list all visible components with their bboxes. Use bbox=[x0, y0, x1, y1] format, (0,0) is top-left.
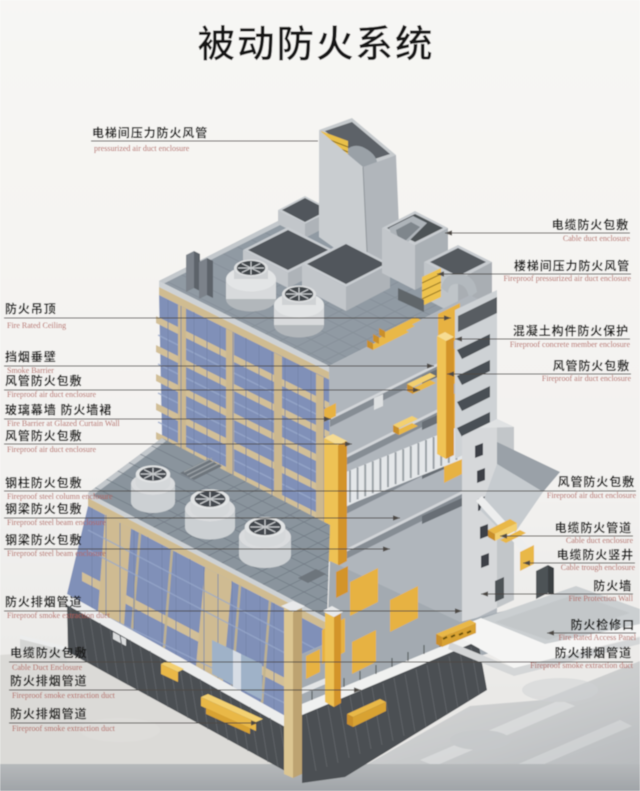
svg-text:钢梁防火包敷: 钢梁防火包敷 bbox=[5, 500, 82, 517]
svg-text:挡烟垂壁: 挡烟垂壁 bbox=[5, 348, 57, 365]
svg-text:防火排烟管道: 防火排烟管道 bbox=[10, 705, 87, 722]
svg-text:玻璃幕墙 防火墙裙: 玻璃幕墙 防火墙裙 bbox=[5, 401, 112, 418]
svg-text:防火排烟管道: 防火排烟管道 bbox=[10, 672, 87, 689]
svg-text:Fireproof air duct enclosure: Fireproof air duct enclosure bbox=[7, 445, 97, 454]
svg-text:混凝土构件防火保护: 混凝土构件防火保护 bbox=[513, 322, 629, 339]
svg-text:风管防火包敷: 风管防火包敷 bbox=[5, 427, 82, 444]
svg-text:防火吊顶: 防火吊顶 bbox=[5, 300, 57, 317]
svg-text:电梯间压力防火风管: 电梯间压力防火风管 bbox=[92, 124, 208, 141]
svg-text:Fire Rated Ceiling: Fire Rated Ceiling bbox=[7, 321, 66, 330]
svg-text:防火检修口: 防火检修口 bbox=[570, 616, 635, 633]
svg-text:Cable duct enclosure: Cable duct enclosure bbox=[563, 234, 631, 243]
svg-text:防火排烟管道: 防火排烟管道 bbox=[555, 644, 632, 661]
svg-text:Fireproof concrete member encl: Fireproof concrete member enclosure bbox=[510, 340, 631, 349]
svg-text:Fireproof air duct enclosure: Fireproof air duct enclosure bbox=[7, 390, 97, 399]
svg-text:Fireproof smoke extraction duc: Fireproof smoke extraction duct bbox=[530, 661, 634, 670]
svg-text:Cable duct enclosure: Cable duct enclosure bbox=[566, 536, 634, 545]
svg-text:Fireproof pressurized air duct: Fireproof pressurized air duct enclosure bbox=[503, 274, 631, 283]
svg-text:Fireproof smoke extraction duc: Fireproof smoke extraction duct bbox=[7, 611, 111, 620]
svg-text:电缆防火竖井: 电缆防火竖井 bbox=[557, 546, 634, 563]
svg-text:Fireproof steel beam enclosure: Fireproof steel beam enclosure bbox=[7, 549, 106, 558]
svg-text:Fireproof air duct enclosure: Fireproof air duct enclosure bbox=[542, 374, 632, 383]
svg-text:风管防火包敷: 风管防火包敷 bbox=[558, 473, 635, 490]
svg-text:钢柱防火包敷: 钢柱防火包敷 bbox=[5, 474, 82, 491]
svg-text:防火墙: 防火墙 bbox=[593, 577, 632, 594]
svg-text:pressurized air duct enclosure: pressurized air duct enclosure bbox=[94, 144, 190, 153]
svg-text:电缆防火包敷: 电缆防火包敷 bbox=[10, 644, 87, 661]
svg-text:防火排烟管道: 防火排烟管道 bbox=[5, 593, 82, 610]
svg-text:Cable Duct Enclosure: Cable Duct Enclosure bbox=[12, 663, 83, 672]
svg-text:Fireproof steel beam enclosure: Fireproof steel beam enclosure bbox=[7, 518, 106, 527]
svg-text:钢梁防火包敷: 钢梁防火包敷 bbox=[5, 531, 82, 548]
svg-text:Fire Rated Access Panel: Fire Rated Access Panel bbox=[558, 633, 636, 642]
svg-text:风管防火包敷: 风管防火包敷 bbox=[553, 357, 630, 374]
svg-text:Fireproof air duct enclosure: Fireproof air duct enclosure bbox=[547, 491, 637, 500]
svg-text:电缆防火包敷: 电缆防火包敷 bbox=[552, 216, 629, 233]
svg-text:Fireproof smoke extraction duc: Fireproof smoke extraction duct bbox=[12, 724, 116, 733]
svg-text:风管防火包敷: 风管防火包敷 bbox=[5, 372, 82, 389]
svg-text:Fireproof smoke extraction duc: Fireproof smoke extraction duct bbox=[12, 691, 116, 700]
svg-text:被动防火系统: 被动防火系统 bbox=[198, 13, 435, 68]
svg-text:电缆防火管道: 电缆防火管道 bbox=[555, 519, 632, 536]
svg-text:楼梯间压力防火风管: 楼梯间压力防火风管 bbox=[514, 257, 630, 274]
svg-text:Fire Protection Wall: Fire Protection Wall bbox=[568, 594, 633, 603]
svg-text:Cable trough enclosure: Cable trough enclosure bbox=[561, 563, 636, 572]
